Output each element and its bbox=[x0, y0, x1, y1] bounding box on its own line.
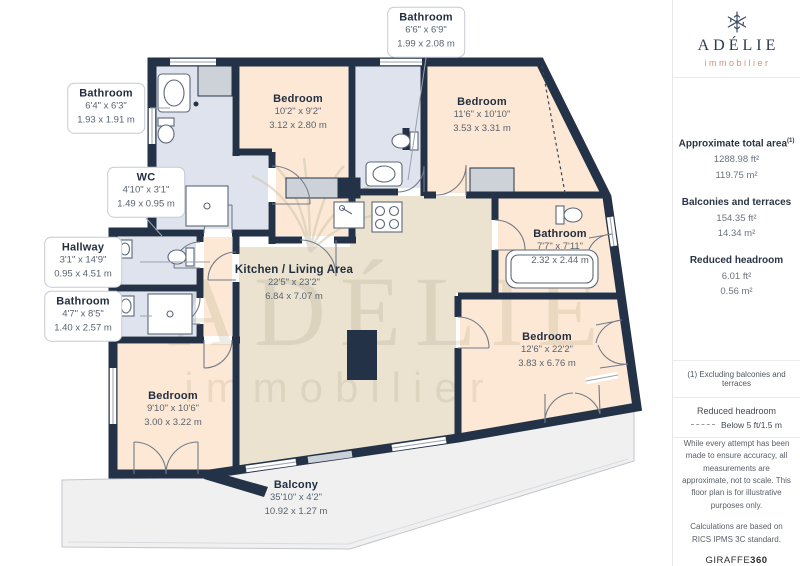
brand-name: ADÉLIE bbox=[698, 37, 780, 55]
closet-living bbox=[286, 178, 338, 198]
toilet-icon bbox=[168, 248, 194, 266]
giraffe360-credit: GIRAFFE360 bbox=[682, 555, 791, 566]
toilet-icon bbox=[556, 206, 582, 224]
brand-tagline: immobilier bbox=[704, 58, 770, 68]
dashed-line-sample bbox=[691, 424, 715, 425]
closet-bathroom-top-left bbox=[198, 66, 232, 96]
floor-plan: ADÉLIE immobilier bbox=[0, 0, 672, 566]
bathtub-icon bbox=[506, 250, 598, 288]
stove-icon bbox=[372, 202, 402, 232]
disclaimer-block: While every attempt has been made to ens… bbox=[673, 438, 800, 566]
sink-icon bbox=[118, 240, 132, 258]
area-summary: Approximate total area(1) 1288.98 ft²119… bbox=[673, 78, 800, 361]
headroom-legend: Reduced headroom Below 5 ft/1.5 m bbox=[673, 398, 800, 438]
shower-icon bbox=[186, 186, 228, 226]
disclaimer-text: While every attempt has been made to ens… bbox=[682, 438, 791, 512]
balconies-values: 154.35 ft²14.34 m² bbox=[673, 211, 800, 241]
legend-label: Below 5 ft/1.5 m bbox=[721, 420, 782, 430]
reduced-headroom-group: Reduced headroom 6.01 ft²0.56 m² bbox=[673, 255, 800, 299]
closet-bedroom-top-right bbox=[470, 168, 514, 194]
sink-icon bbox=[366, 162, 402, 186]
reduced-headroom-values: 6.01 ft²0.56 m² bbox=[673, 269, 800, 299]
balconies-group: Balconies and terraces 154.35 ft²14.34 m… bbox=[673, 197, 800, 241]
reduced-headroom-title: Reduced headroom bbox=[673, 255, 800, 266]
toilet-icon bbox=[158, 118, 174, 143]
footnote-marker: (1) bbox=[787, 138, 794, 144]
balconies-title: Balconies and terraces bbox=[673, 197, 800, 208]
floorplan-page: ADÉLIE immobilier bbox=[0, 0, 800, 566]
column bbox=[347, 330, 377, 380]
total-area-values: 1288.98 ft²119.75 m² bbox=[673, 152, 800, 182]
total-area-group: Approximate total area(1) 1288.98 ft²119… bbox=[673, 138, 800, 183]
kitchen-sink-icon bbox=[334, 202, 364, 228]
snowflake-icon bbox=[725, 10, 749, 34]
sink-icon bbox=[158, 74, 190, 112]
total-area-title: Approximate total area(1) bbox=[673, 138, 800, 149]
sidebar: ADÉLIE immobilier Approximate total area… bbox=[672, 0, 800, 566]
footnote: (1) Excluding balconies and terraces bbox=[673, 361, 800, 399]
legend-row: Below 5 ft/1.5 m bbox=[691, 420, 782, 430]
standard-text: Calculations are based on RICS IPMS 3C s… bbox=[682, 521, 791, 546]
sink-icon bbox=[118, 296, 134, 316]
shower-icon bbox=[148, 294, 192, 334]
legend-title: Reduced headroom bbox=[697, 406, 776, 416]
floor-plan-drawing: ADÉLIE immobilier bbox=[0, 0, 672, 566]
brand-block: ADÉLIE immobilier bbox=[673, 0, 800, 78]
watermark-line2: immobilier bbox=[184, 364, 495, 411]
